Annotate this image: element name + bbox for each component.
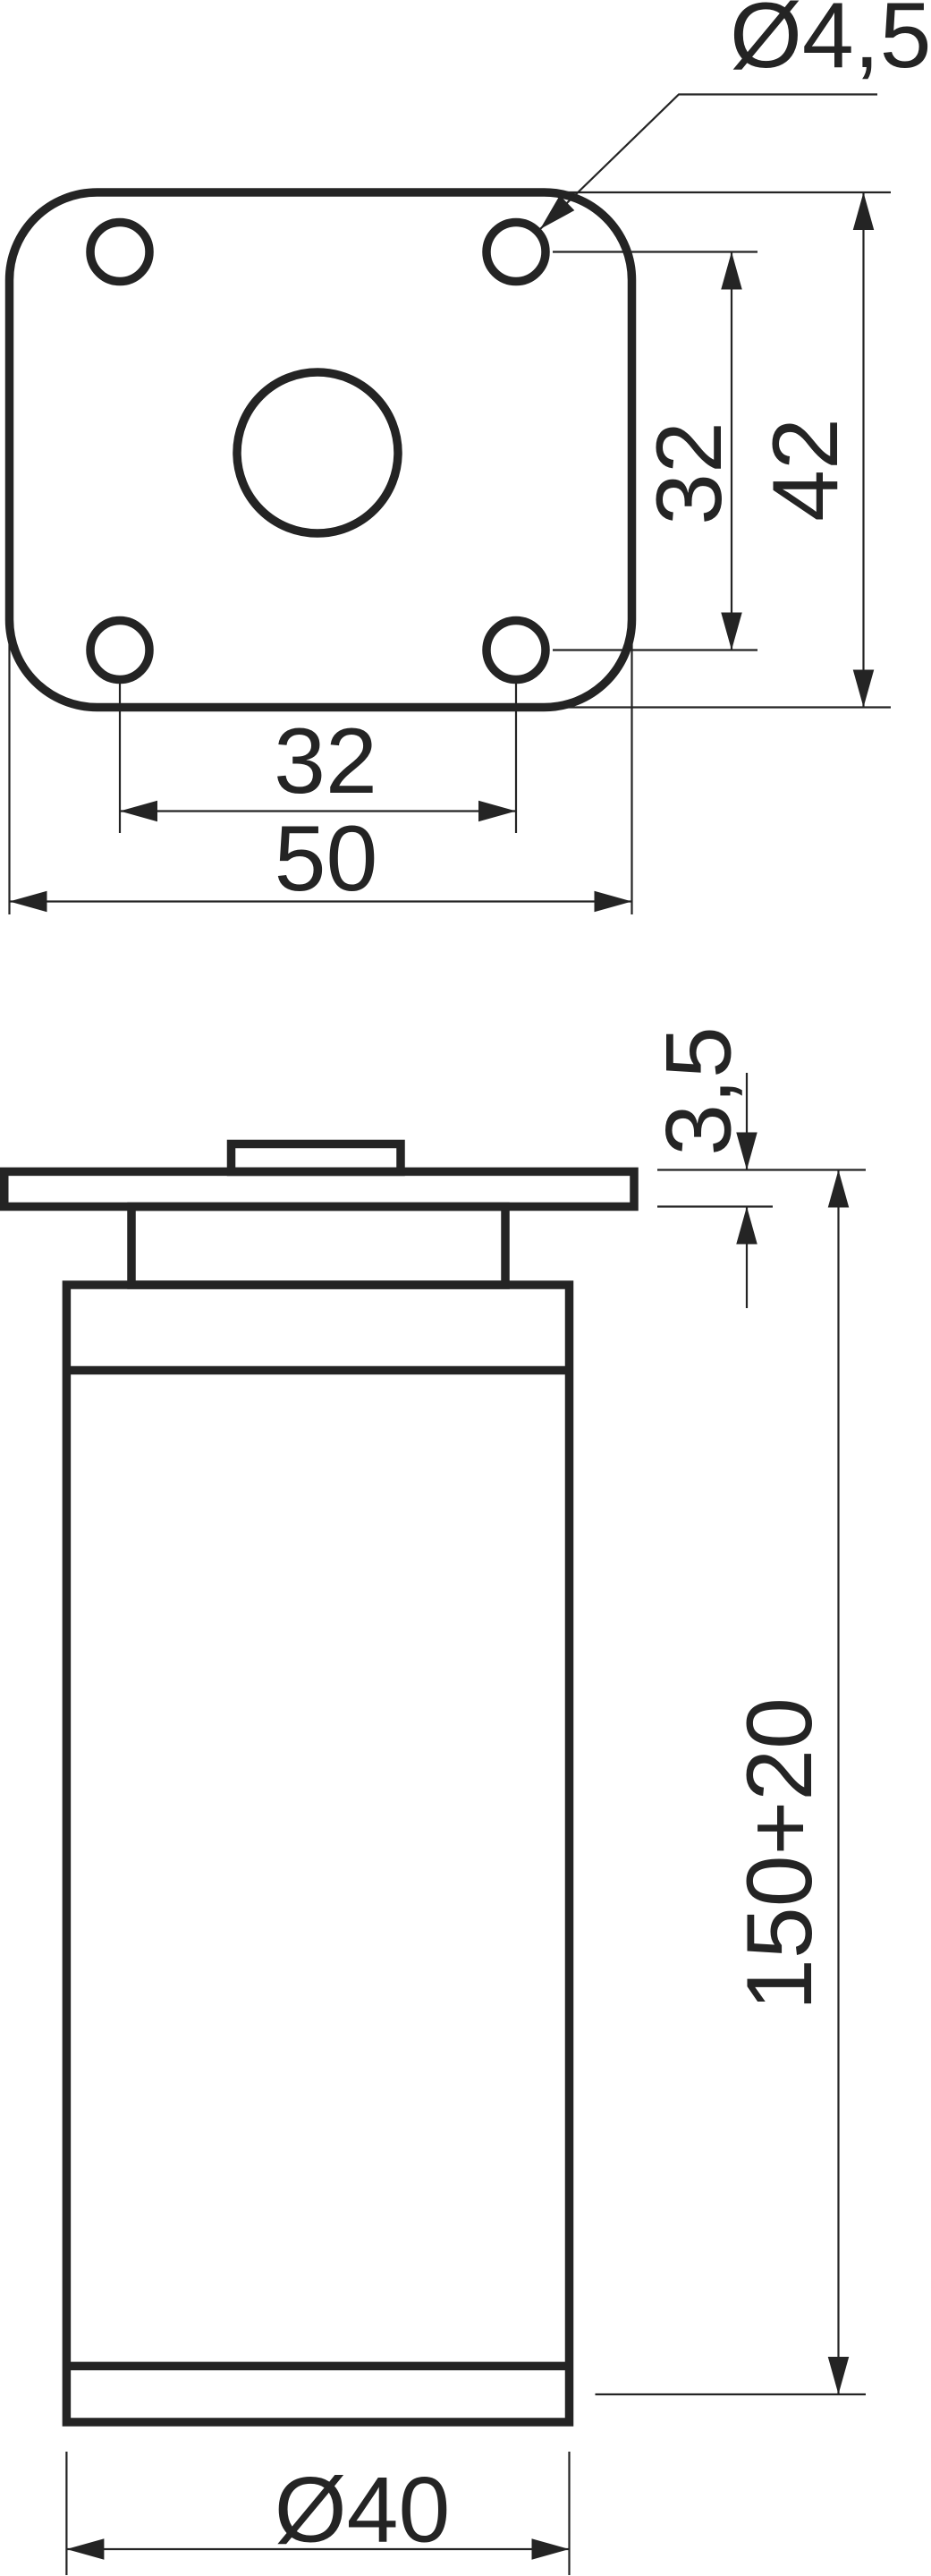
svg-text:50: 50 bbox=[275, 807, 378, 911]
svg-text:32: 32 bbox=[274, 710, 377, 813]
svg-text:Ø4,5: Ø4,5 bbox=[730, 0, 931, 88]
svg-text:3,5: 3,5 bbox=[647, 1026, 751, 1156]
svg-text:42: 42 bbox=[754, 418, 858, 522]
svg-text:32: 32 bbox=[638, 421, 741, 525]
svg-text:150+20: 150+20 bbox=[728, 1697, 832, 2011]
svg-text:Ø40: Ø40 bbox=[275, 2459, 451, 2563]
